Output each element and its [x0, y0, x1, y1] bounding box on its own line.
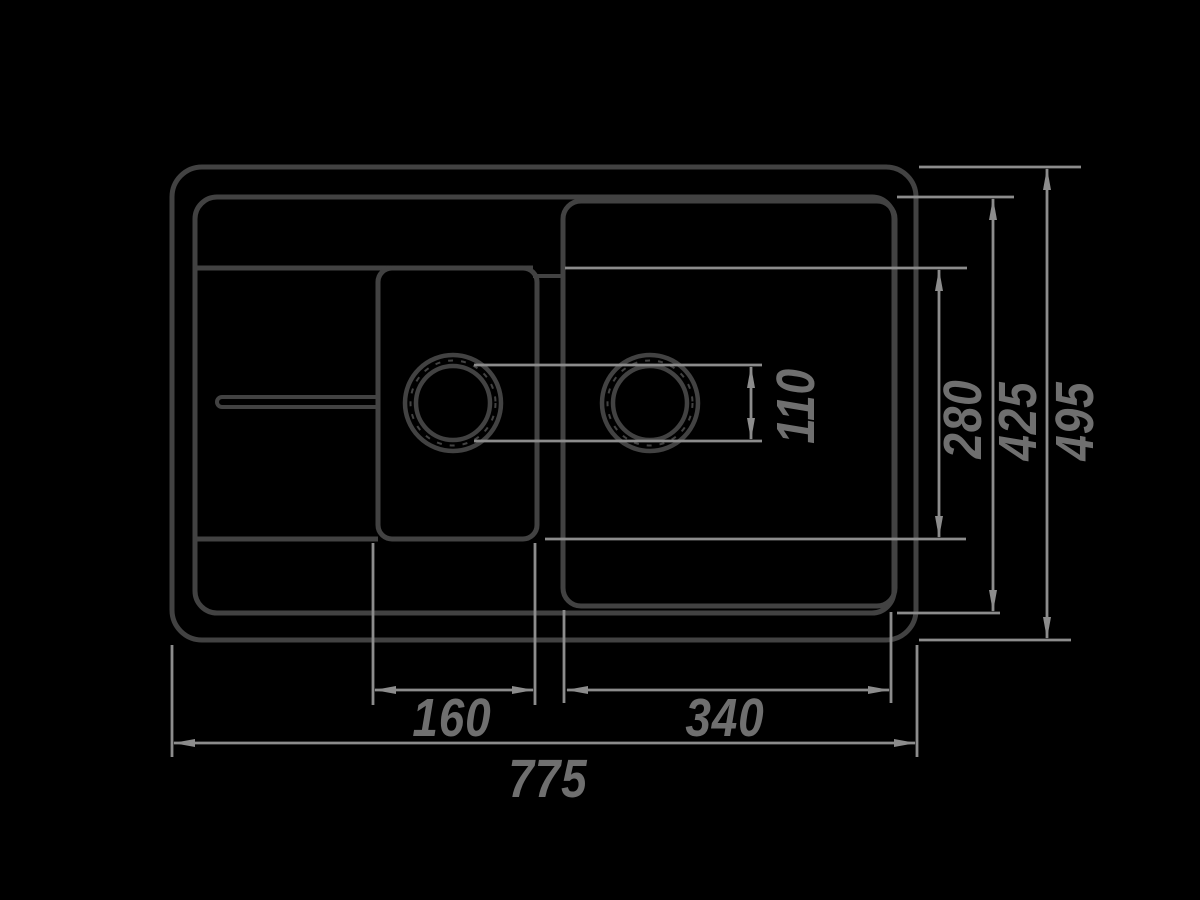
- dimension-lines: [172, 167, 1081, 757]
- arrow-340-left: [566, 686, 588, 694]
- small-drain-dashed-ring: [411, 361, 496, 446]
- arrow-425-up: [989, 198, 997, 220]
- arrow-280-down: [935, 516, 943, 538]
- arrow-775-right: [894, 739, 916, 747]
- sink-technical-drawing: 110 280 425 495 160 340 775: [0, 0, 1200, 900]
- dimension-label-small-bowl-width: 160: [412, 691, 491, 745]
- dimension-label-overall-depth: 495: [1048, 381, 1102, 460]
- dimension-label-inner-rim-depth: 425: [991, 381, 1045, 460]
- dimension-label-overall-width: 775: [508, 752, 587, 806]
- drainboard-groove: [217, 397, 378, 407]
- arrow-160-left: [374, 686, 396, 694]
- arrow-495-up: [1043, 168, 1051, 190]
- large-drain-dashed-ring: [608, 361, 693, 446]
- arrow-110-down: [747, 418, 755, 440]
- arrow-280-up: [935, 269, 943, 291]
- dimension-label-drain-diameter: 110: [769, 368, 823, 444]
- large-bowl-drain-hole: [602, 355, 698, 451]
- arrow-775-left: [173, 739, 195, 747]
- arrow-160-right: [512, 686, 534, 694]
- small-bowl-drain-hole: [405, 355, 501, 451]
- dimension-label-bowl-depth: 280: [936, 379, 990, 458]
- dimension-label-large-bowl-width: 340: [685, 691, 764, 745]
- dimension-arrowheads: [173, 168, 1051, 747]
- arrow-110-up: [747, 366, 755, 388]
- arrow-495-down: [1043, 617, 1051, 639]
- arrow-340-right: [868, 686, 890, 694]
- small-bowl-outline: [378, 268, 537, 539]
- arrow-425-down: [989, 590, 997, 612]
